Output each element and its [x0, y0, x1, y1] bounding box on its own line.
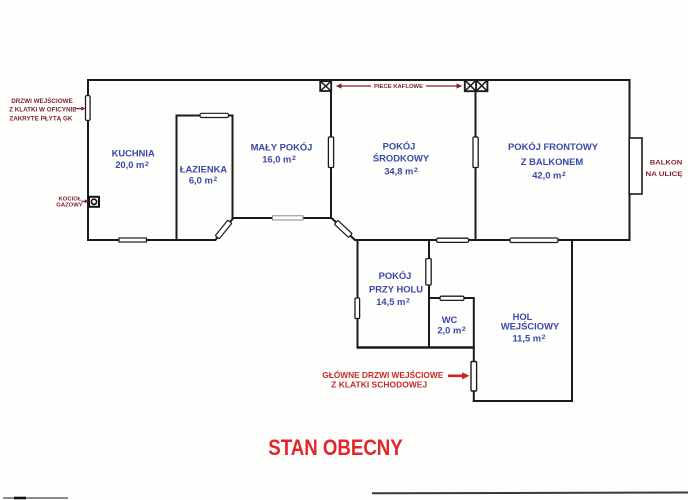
svg-text:34,8 m2: 34,8 m2	[384, 165, 418, 176]
svg-text:STAN OBECNY: STAN OBECNY	[268, 435, 403, 460]
svg-text:WC: WC	[442, 314, 458, 325]
svg-text:6,0 m2: 6,0 m2	[189, 174, 218, 185]
svg-text:BALKON: BALKON	[650, 160, 683, 167]
svg-text:11,5 m2: 11,5 m2	[512, 332, 545, 343]
svg-text:ŚRODKOWY: ŚRODKOWY	[373, 152, 430, 163]
svg-text:WEJŚCIOWY: WEJŚCIOWY	[501, 320, 560, 331]
svg-text:Z KLATKI SCHODOWEJ: Z KLATKI SCHODOWEJ	[331, 379, 427, 389]
svg-text:14,5 m2: 14,5 m2	[376, 296, 410, 307]
svg-text:KUCHNIA: KUCHNIA	[112, 148, 155, 159]
svg-text:2,0 m2: 2,0 m2	[437, 324, 466, 335]
svg-text:42,0 m2: 42,0 m2	[532, 169, 566, 180]
svg-text:20,0 m2: 20,0 m2	[115, 159, 149, 170]
svg-text:POKÓJ FRONTOWY: POKÓJ FRONTOWY	[508, 141, 599, 152]
svg-text:PRZY HOLU: PRZY HOLU	[369, 283, 423, 294]
svg-text:NA ULICĘ: NA ULICĘ	[646, 171, 684, 178]
svg-text:MAŁY POKÓJ: MAŁY POKÓJ	[251, 141, 313, 152]
svg-text:POKÓJ: POKÓJ	[383, 140, 416, 151]
svg-text:Z KLATKI W OFICYNIE: Z KLATKI W OFICYNIE	[9, 107, 76, 114]
svg-text:ŁAZIENKA: ŁAZIENKA	[180, 163, 228, 174]
svg-text:16,0 m2: 16,0 m2	[262, 153, 296, 164]
svg-text:POKÓJ: POKÓJ	[379, 270, 412, 281]
svg-text:KOCIOŁ: KOCIOŁ	[59, 197, 82, 203]
svg-text:GAZOWY: GAZOWY	[56, 203, 83, 209]
svg-text:PIECE KAFLOWE: PIECE KAFLOWE	[374, 84, 423, 90]
svg-text:ZAKRYTE PŁYTĄ GK: ZAKRYTE PŁYTĄ GK	[9, 115, 73, 122]
svg-text:Z BALKONEM: Z BALKONEM	[521, 156, 584, 167]
svg-text:DRZWI WEJŚCIOWE: DRZWI WEJŚCIOWE	[11, 96, 73, 105]
